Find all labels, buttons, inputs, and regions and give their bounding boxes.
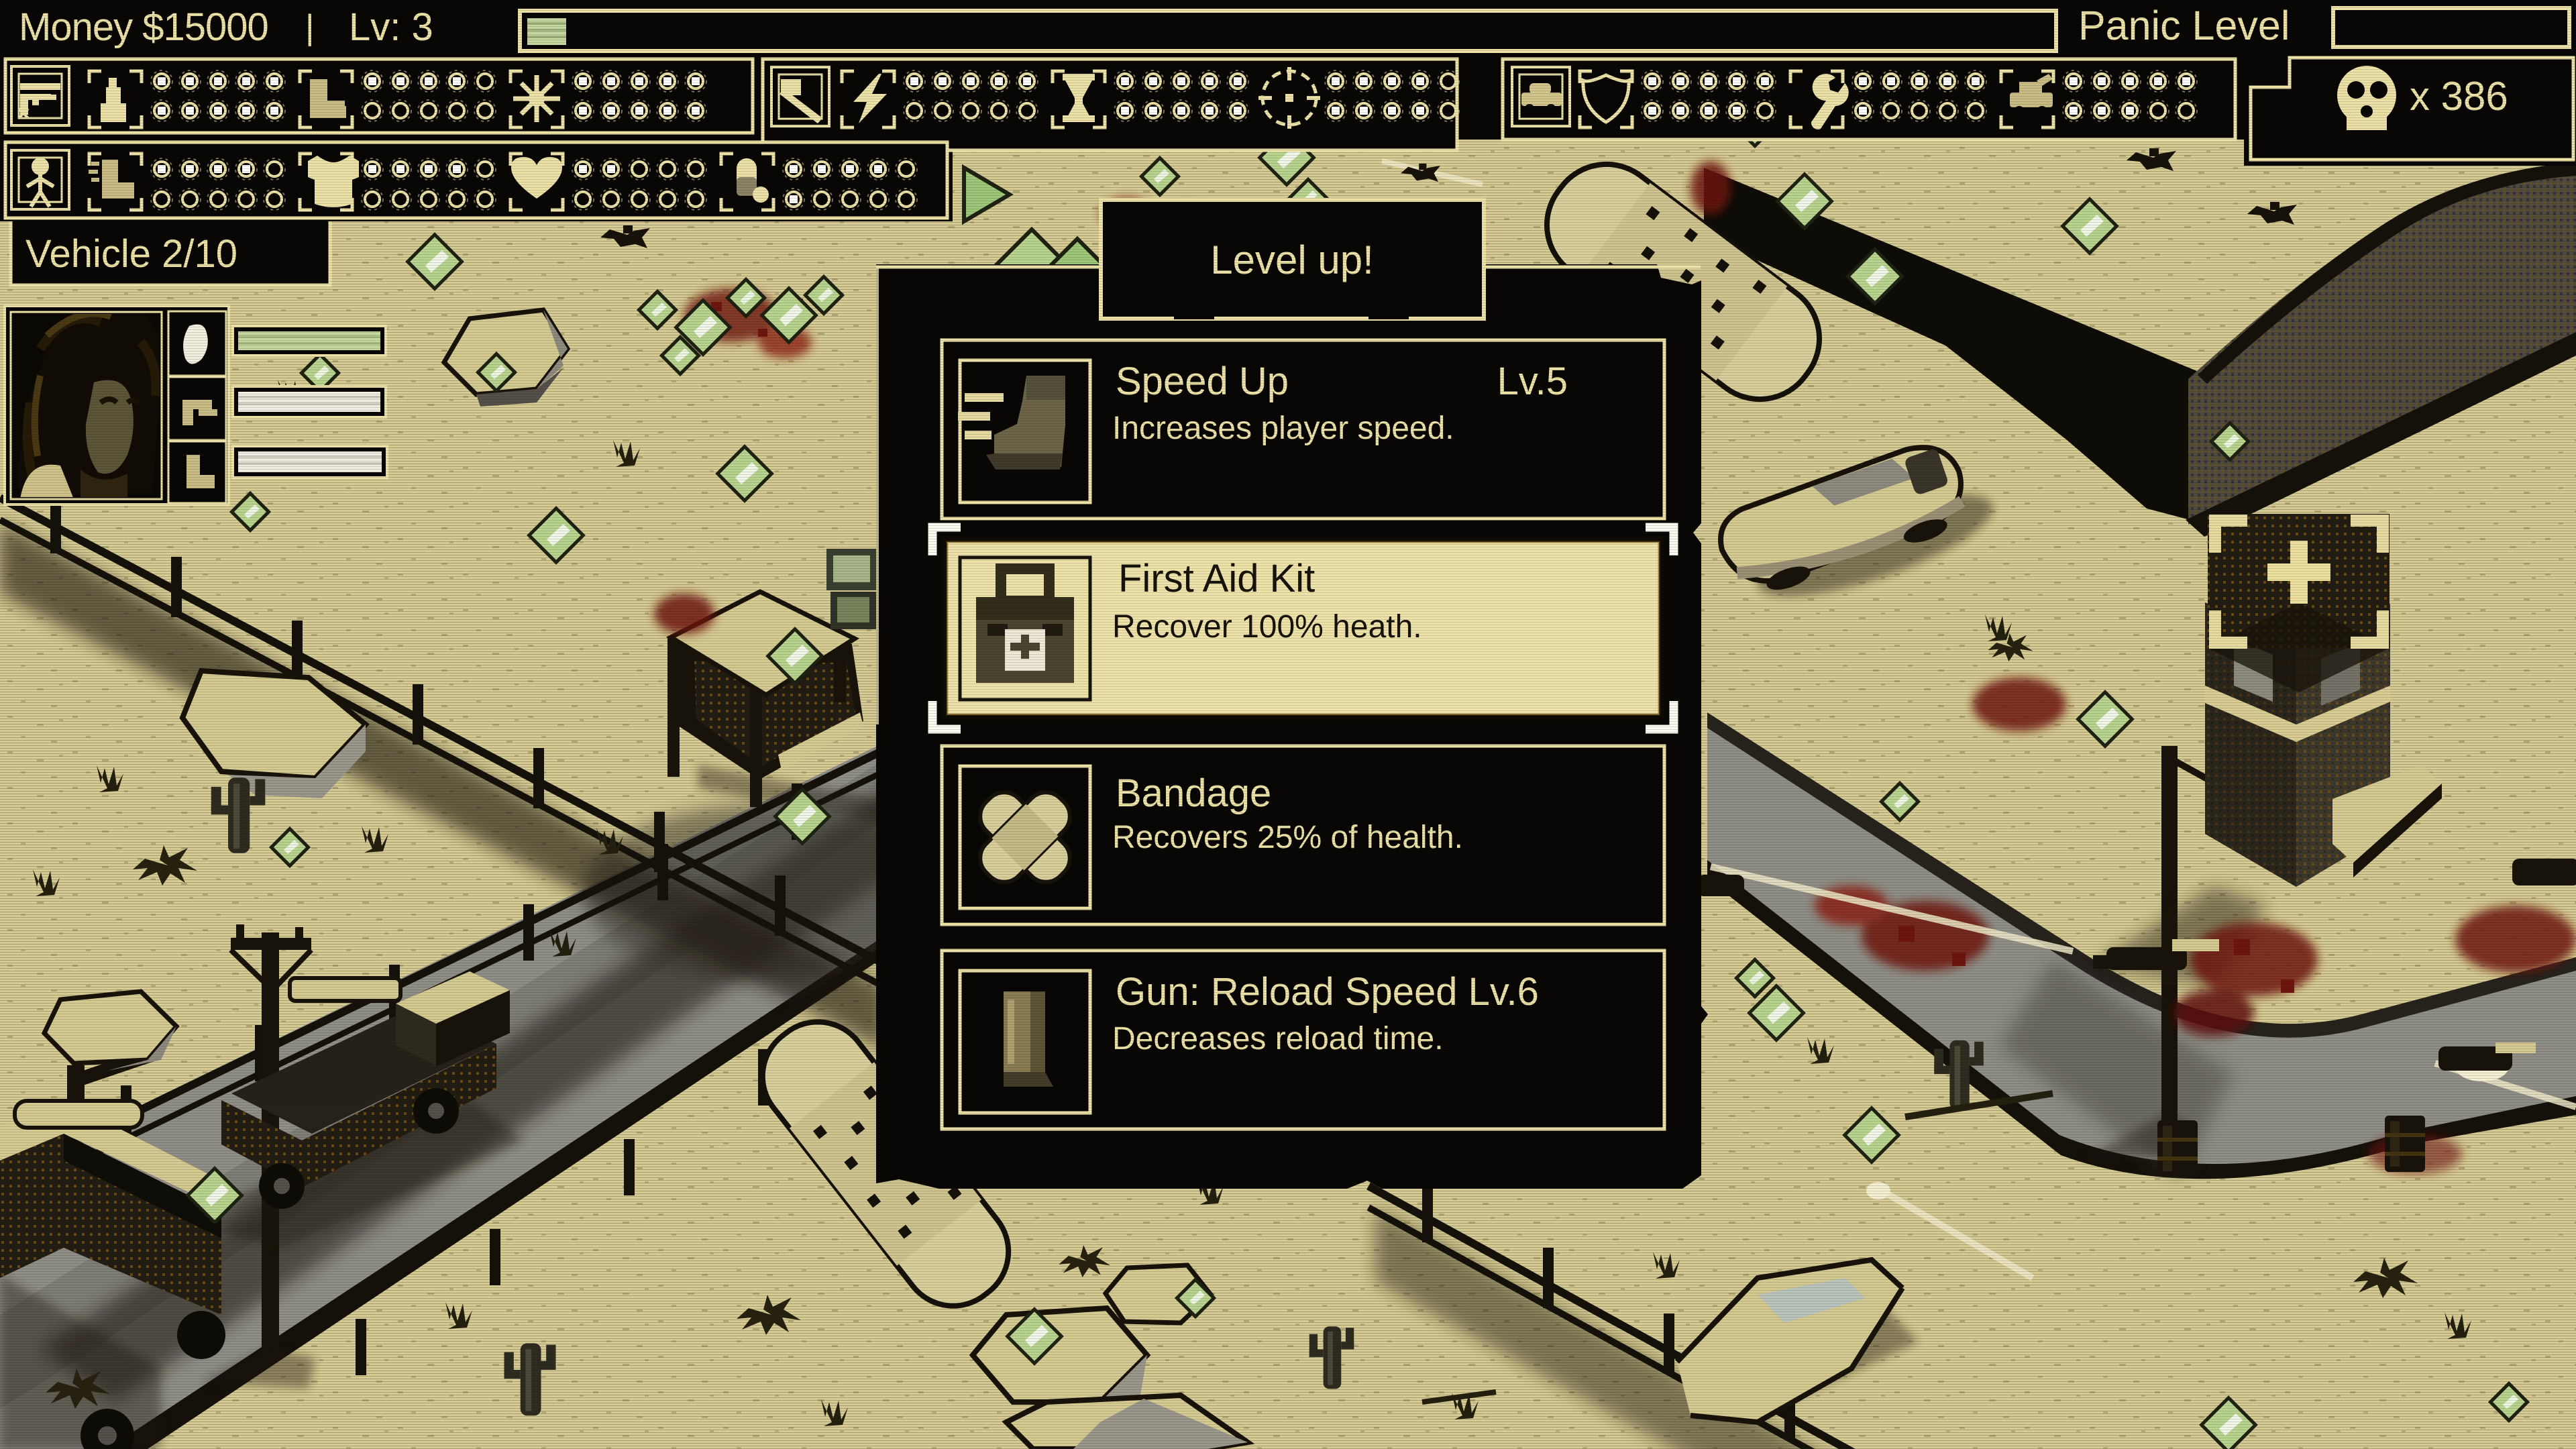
svg-text:Increases player speed.: Increases player speed. (1112, 411, 1454, 446)
svg-text:First Aid Kit: First Aid Kit (1118, 557, 1315, 600)
svg-text:Decreases reload time.: Decreases reload time. (1112, 1021, 1444, 1057)
svg-text:Recover 100% heath.: Recover 100% heath. (1112, 609, 1422, 645)
svg-text:Lv.5: Lv.5 (1497, 360, 1568, 403)
svg-text:Recovers 25% of health.: Recovers 25% of health. (1112, 820, 1463, 855)
svg-text:Level up!: Level up! (1210, 237, 1374, 282)
svg-text:Bandage: Bandage (1116, 771, 1271, 815)
svg-text:Gun: Reload Speed Lv.6: Gun: Reload Speed Lv.6 (1116, 970, 1539, 1014)
svg-text:Speed Up: Speed Up (1116, 360, 1289, 403)
